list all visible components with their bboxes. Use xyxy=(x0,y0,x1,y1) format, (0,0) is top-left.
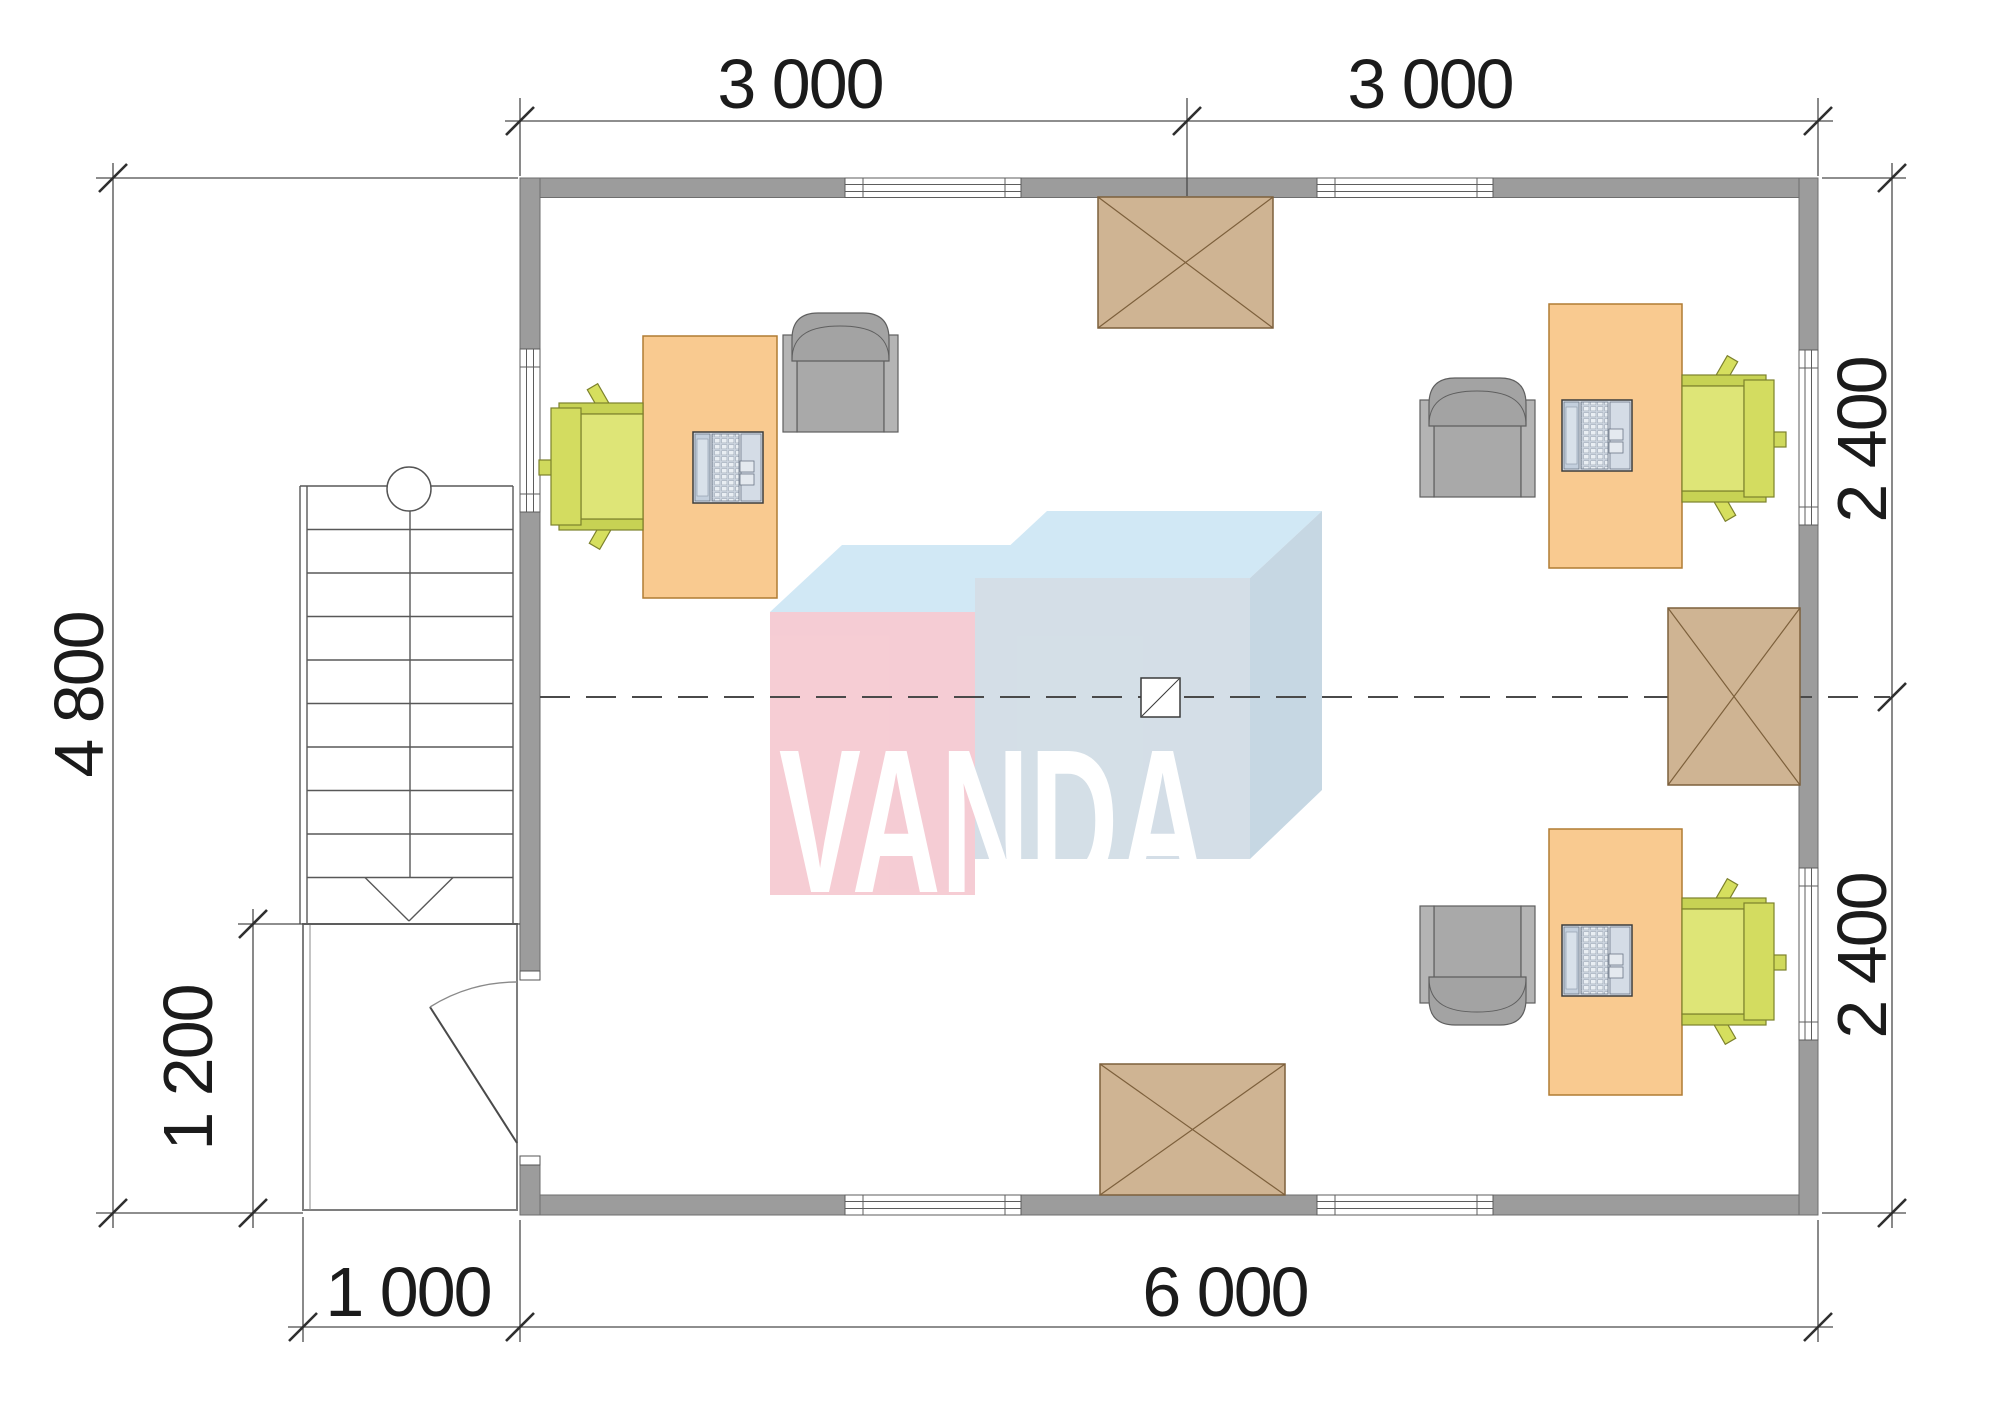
door-leaf xyxy=(430,1007,517,1143)
staircase xyxy=(300,467,513,924)
wall-right-lower xyxy=(1799,1040,1818,1215)
workstation-top-right xyxy=(1420,304,1786,568)
dim-right-lower-span: 2 400 xyxy=(1823,873,1901,1038)
floor-plan-drawing: 3 000 3 000 4 800 1 200 1 000 6 000 2 40… xyxy=(0,0,2000,1410)
wall-top-middle xyxy=(1021,178,1317,198)
entrance-door xyxy=(430,971,540,1165)
wall-bottom-middle xyxy=(1021,1195,1317,1215)
workstation-bottom-right xyxy=(1420,829,1786,1095)
dim-right-upper-span: 2 400 xyxy=(1823,357,1901,522)
storage-cabinet-bottom xyxy=(1100,1064,1285,1195)
task-chair xyxy=(539,384,643,550)
window-left xyxy=(520,349,540,512)
window-top-1 xyxy=(845,178,1021,198)
window-right-1 xyxy=(1799,350,1818,525)
window-bottom-2 xyxy=(1317,1195,1493,1215)
task-chair xyxy=(1682,879,1786,1045)
guest-armchair xyxy=(1420,378,1535,497)
wall-left-middle xyxy=(520,512,540,972)
task-chair xyxy=(1682,356,1786,522)
wall-left-upper xyxy=(520,178,540,349)
storage-cabinet-right xyxy=(1668,608,1800,785)
dim-top-right-span: 3 000 xyxy=(1347,45,1512,123)
wall-top-right xyxy=(1493,178,1818,198)
laptop xyxy=(1562,400,1632,471)
wall-right-upper xyxy=(1799,178,1818,350)
vanda-watermark-text: VANDA xyxy=(779,706,1207,935)
porch-outline xyxy=(303,924,517,1210)
stair-column-circle xyxy=(387,467,431,511)
wall-top-left xyxy=(520,178,845,198)
dim-left-height: 4 800 xyxy=(40,612,118,777)
dim-top-left-span: 3 000 xyxy=(717,45,882,123)
guest-armchair xyxy=(783,313,898,432)
laptop xyxy=(1562,925,1632,996)
window-bottom-1 xyxy=(845,1195,1021,1215)
door-jamb-bottom xyxy=(520,1156,540,1165)
window-right-2 xyxy=(1799,868,1818,1040)
door-swing-arc xyxy=(430,982,517,1007)
wall-bottom-right xyxy=(1493,1195,1818,1215)
wall-left-lower xyxy=(520,1157,540,1215)
wall-bottom-left xyxy=(540,1195,845,1215)
axis-marker-square xyxy=(1141,678,1180,717)
dim-bottom-main-span: 6 000 xyxy=(1142,1253,1307,1331)
dim-bottom-porch-span: 1 000 xyxy=(325,1253,490,1331)
storage-cabinet-top xyxy=(1098,197,1273,328)
floor-plan-page: 3 000 3 000 4 800 1 200 1 000 6 000 2 40… xyxy=(0,0,2000,1410)
stair-direction-arrow xyxy=(365,878,409,922)
laptop xyxy=(693,432,763,503)
door-jamb-top xyxy=(520,971,540,980)
guest-armchair xyxy=(1420,906,1535,1025)
dim-porch-height: 1 200 xyxy=(149,985,227,1150)
window-top-2 xyxy=(1317,178,1493,198)
